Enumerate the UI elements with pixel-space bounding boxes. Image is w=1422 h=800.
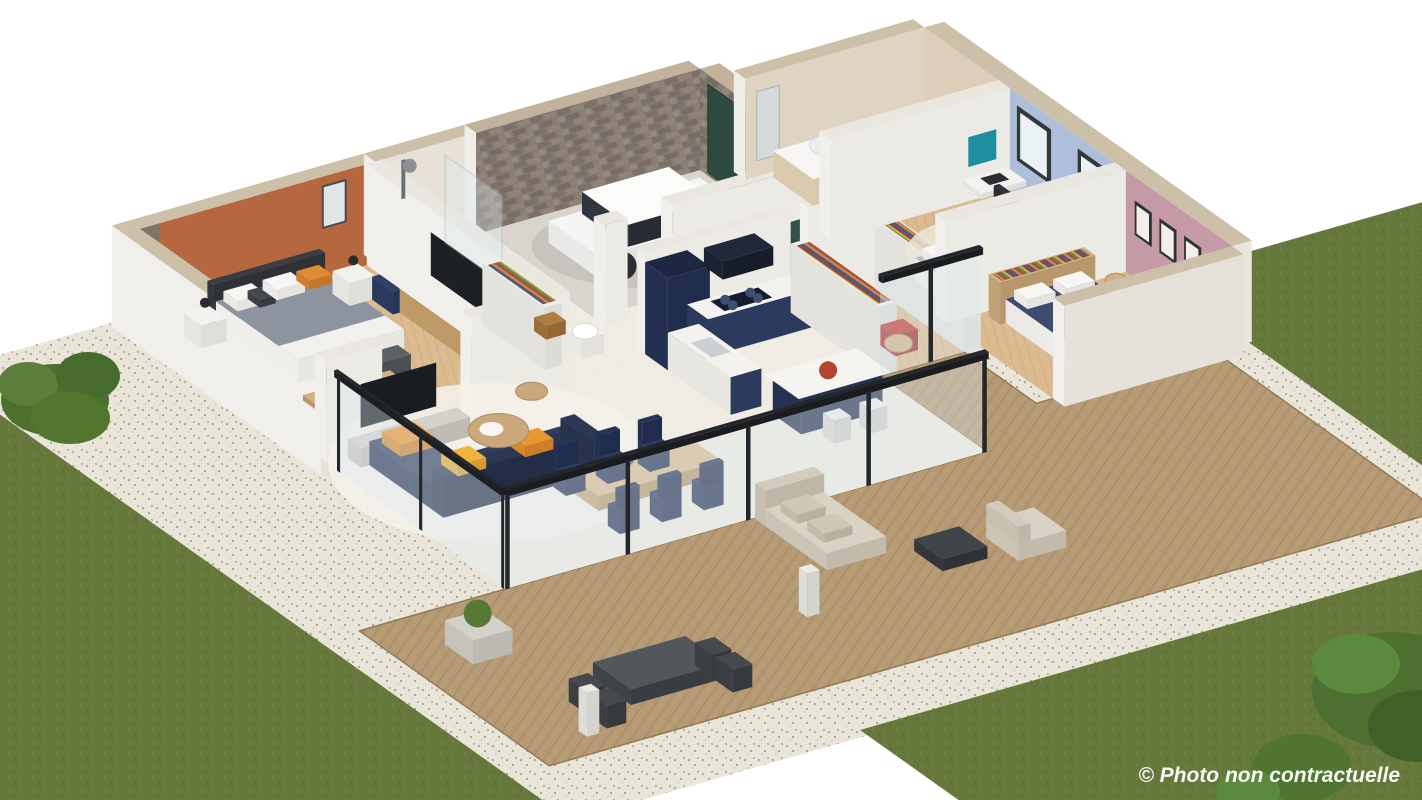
side-table-living bbox=[516, 382, 548, 400]
scene-group bbox=[0, 19, 1422, 800]
deck-bollard-2 bbox=[579, 687, 587, 737]
outdoor-sofa-back bbox=[755, 483, 765, 526]
dining-chair-1-back bbox=[554, 444, 559, 469]
deck-bollard-1 bbox=[799, 568, 807, 618]
glass-front-post-4 bbox=[866, 391, 871, 487]
cooktop-burner-2 bbox=[728, 300, 738, 310]
glass-front-post-2 bbox=[626, 460, 631, 556]
wall-kitchen-back bbox=[638, 248, 646, 355]
lamp-left bbox=[200, 298, 210, 308]
lamp-right bbox=[348, 255, 358, 265]
glass-front-post-3 bbox=[746, 425, 751, 521]
glass-left-post-2 bbox=[419, 435, 422, 531]
glass-front-post-5 bbox=[982, 358, 987, 454]
coffee-table-tray bbox=[479, 422, 503, 436]
headboard-shelf-bedroom3 bbox=[989, 274, 1000, 324]
bush-left bbox=[30, 392, 110, 444]
wall-bedroom3-front bbox=[1053, 297, 1064, 406]
dining-chair-3-back bbox=[638, 420, 643, 445]
wc-toilet-seat bbox=[572, 323, 598, 339]
wall-wing-back bbox=[734, 71, 745, 180]
glass-hall-post bbox=[929, 267, 934, 363]
wall-garage-front-a bbox=[605, 218, 627, 326]
deck-bollard-2 bbox=[587, 690, 599, 737]
watermark: © Photo non contractuelle bbox=[1138, 764, 1400, 787]
wall-bath-bedroom2 bbox=[819, 131, 830, 240]
fruit-bowl bbox=[819, 361, 837, 379]
wall-garage-front-a bbox=[594, 217, 605, 326]
glass-left-post-3 bbox=[501, 493, 504, 590]
shower-head bbox=[403, 159, 417, 173]
cooktop-burner-4 bbox=[753, 293, 763, 303]
floorplan-3d-render: © Photo non contractuelle bbox=[0, 0, 1422, 800]
outdoor-armchair-back bbox=[1019, 523, 1031, 544]
radiator-bathroom bbox=[757, 85, 779, 160]
mirror-master bbox=[323, 180, 346, 228]
dining-chair-2-back bbox=[596, 432, 601, 457]
glass-front-post-1 bbox=[505, 494, 510, 590]
shrub-right-1 bbox=[1312, 634, 1400, 694]
kitchen-tall-unit bbox=[645, 262, 668, 370]
wall-master-front-a bbox=[315, 353, 326, 462]
glass-left-post-1 bbox=[337, 376, 340, 472]
deck-bollard-1 bbox=[807, 570, 819, 617]
planter-plant bbox=[464, 600, 492, 628]
floorplan-svg: © Photo non contractuelle bbox=[0, 0, 1422, 800]
